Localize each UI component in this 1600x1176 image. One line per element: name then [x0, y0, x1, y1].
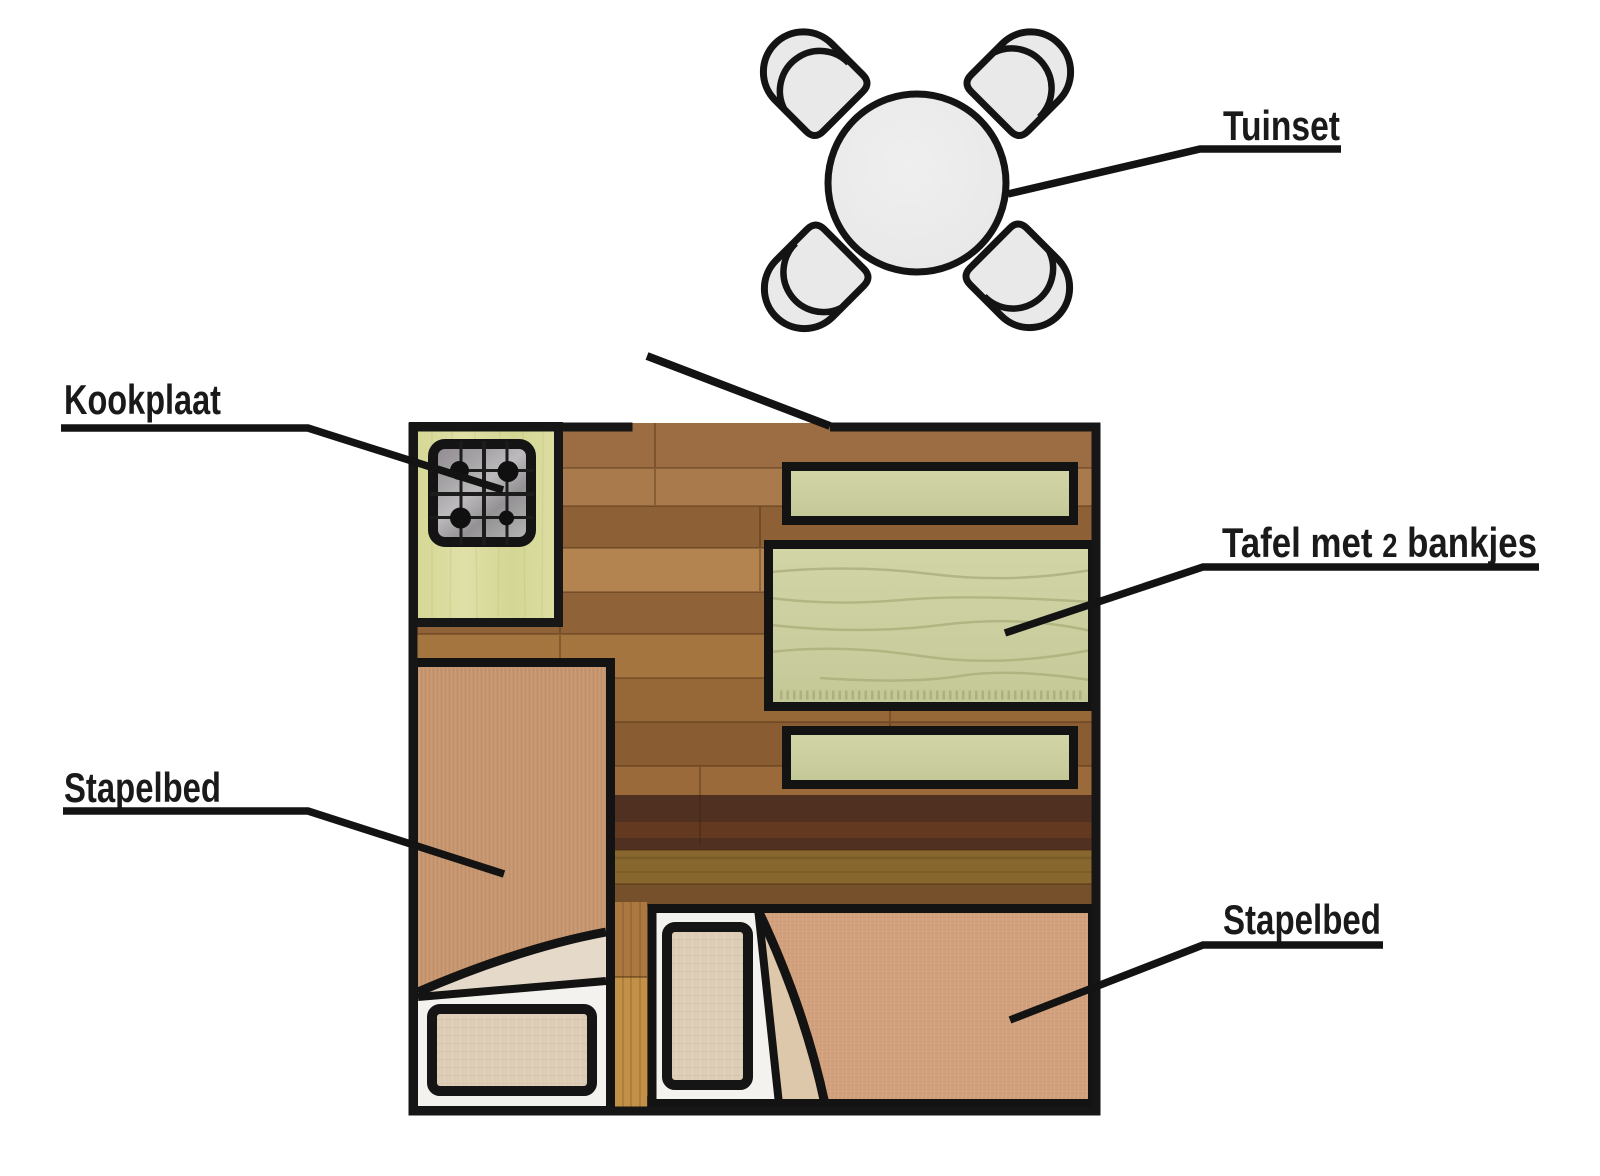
- svg-text:Tafel met 2 bankjes: Tafel met 2 bankjes: [1222, 519, 1537, 566]
- svg-text:Kookplaat: Kookplaat: [64, 376, 221, 423]
- svg-text:Stapelbed: Stapelbed: [1223, 896, 1381, 943]
- svg-text:Stapelbed: Stapelbed: [64, 764, 221, 811]
- svg-text:Tuinset: Tuinset: [1223, 102, 1340, 149]
